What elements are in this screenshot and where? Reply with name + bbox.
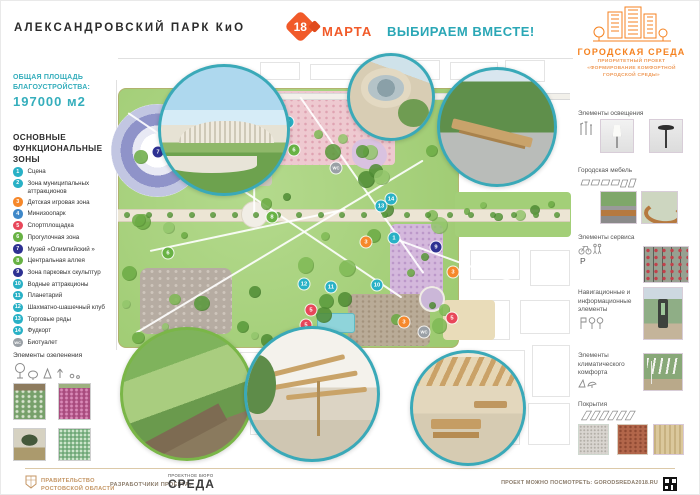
zone-label: Детская игровая зона	[28, 197, 90, 206]
zone-label: Торговые ряды	[28, 314, 71, 323]
tree	[511, 212, 517, 218]
map-marker-3: 3	[399, 317, 410, 328]
tree	[134, 150, 148, 164]
tree	[169, 294, 180, 305]
map-marker-10: 10	[372, 280, 383, 291]
zone-label: Спортплощадка	[28, 221, 74, 230]
date-number: 18	[294, 19, 307, 33]
map-marker-13: 13	[376, 201, 387, 212]
lighting-photo-black-lamp	[649, 119, 683, 153]
zone-number-badge: 4	[13, 209, 23, 219]
map-marker-11: 11	[326, 282, 337, 293]
furniture-photo-bench-1	[600, 191, 637, 224]
slogan: ВЫБИРАЕМ ВМЕСТЕ!	[387, 24, 535, 39]
zone-number-badge: 3	[13, 197, 23, 207]
map-marker-12: 12	[299, 279, 310, 290]
zone-number-badge: 14	[13, 326, 23, 336]
date-word: МАРТА	[322, 24, 372, 39]
program-subtitle: ПРИОРИТЕТНЫЙ ПРОЕКТ «ФОРМИРОВАНИЕ КОМФОР…	[568, 59, 695, 80]
photo-inset-planetarium-render	[347, 53, 435, 141]
zone-list-item: 11Планетарий	[13, 291, 116, 301]
tree	[425, 212, 431, 218]
zone-number-badge: WC	[13, 338, 23, 348]
tree	[122, 300, 131, 309]
photo-inset-foodcourt-pavilion	[410, 350, 526, 466]
poster-title: АЛЕКСАНДРОВСКИЙ ПАРК КиО	[14, 22, 245, 34]
legend-climate-title: Элементы климатического комфорта	[578, 352, 638, 378]
tree	[167, 212, 173, 218]
lamp-post-icons	[578, 120, 594, 136]
zone-list-item: 9Зона парковых скульптур	[13, 268, 116, 278]
zone-label: Музей «Олимпийский »	[28, 244, 95, 253]
zone-list-item: 13Торговые ряды	[13, 314, 116, 324]
tree	[404, 212, 410, 218]
zone-number-badge: 9	[13, 268, 23, 278]
tree	[146, 212, 152, 218]
zones-heading: ОСНОВНЫЕ ФУНКЦИОНАЛЬНЫЕ ЗОНЫ	[13, 133, 125, 165]
greenery-label: Элементы озеленения	[13, 352, 82, 359]
total-area-value: 197000 м2	[13, 94, 86, 109]
zone-label: Центральная аллея	[28, 256, 85, 265]
zone-label: Зона парковых скульптур	[28, 268, 101, 277]
legend-furniture-title: Городская мебель	[578, 167, 632, 176]
photo-inset-wooden-canopy	[244, 326, 380, 462]
city-sketch-block	[520, 300, 570, 334]
tree	[189, 212, 195, 218]
tree	[356, 145, 369, 158]
footer-divider	[25, 468, 675, 469]
tree	[490, 212, 496, 218]
zone-number-badge: 10	[13, 279, 23, 289]
qr-code	[663, 477, 677, 491]
zone-list-item: 1Сцена	[13, 167, 116, 177]
zone-label: Зона муниципальных аттракционов	[28, 179, 117, 196]
map-marker-8: 8	[267, 212, 278, 223]
map-marker-5: 5	[447, 313, 458, 324]
tree	[249, 286, 261, 298]
city-sketch-block	[528, 403, 570, 445]
bike-and-people-icons	[578, 243, 602, 255]
service-photo-bike-racks	[643, 246, 689, 283]
coverings-swatch-gravel	[578, 424, 609, 455]
zone-list-item: 5Спортплощадка	[13, 221, 116, 231]
city-sketch-block	[530, 250, 570, 286]
greenery-photo-tree	[13, 428, 46, 461]
city-sketch-block	[532, 345, 570, 397]
zone-label: Шахматно-шашечный клуб	[28, 303, 105, 312]
map-marker-WC: WC	[419, 327, 430, 338]
tree	[468, 212, 474, 218]
tree	[132, 214, 145, 227]
tree	[339, 260, 356, 277]
tree	[447, 212, 453, 218]
zone-list-item: 6Прогулочная зона	[13, 232, 116, 242]
zone-label: Прогулочная зона	[28, 232, 80, 241]
photo-inset-museum-render	[158, 64, 290, 196]
bureau-logo: ПРОЕКТНОЕ БЮРО СРЕДА	[168, 473, 215, 490]
poster-root: 724668131413931012113555WCWC АЛЕКСАНДРОВ…	[0, 0, 700, 495]
zone-list-item: 12Шахматно-шашечный клуб	[13, 303, 116, 313]
signage-icons	[578, 316, 604, 330]
zones-legend: 1Сцена2Зона муниципальных аттракционов3Д…	[13, 167, 116, 349]
photo-inset-street-aerial	[437, 67, 557, 187]
photo-inset-alley-trees	[120, 327, 254, 461]
tree	[554, 212, 560, 218]
map-marker-5: 5	[306, 305, 317, 316]
tree	[533, 212, 539, 218]
zone-label: Минизоопарк	[28, 209, 66, 218]
tree	[374, 170, 389, 185]
map-marker-6: 6	[163, 248, 174, 259]
tree	[232, 212, 238, 218]
bureau-name: СРЕДА	[168, 478, 215, 490]
tree	[339, 212, 345, 218]
coverings-swatch-clay	[617, 424, 648, 455]
map-marker-14: 14	[386, 194, 397, 205]
zone-list-item: 8Центральная аллея	[13, 256, 116, 266]
project-link-label: ПРОЕКТ МОЖНО ПОСМОТРЕТЬ: GORODSREDA2018.…	[430, 480, 658, 486]
city-buildings-icon	[592, 6, 672, 42]
tree	[494, 213, 502, 221]
legend-service-title: Элементы сервиса	[578, 234, 634, 243]
lighting-photo-white-lamp	[600, 119, 634, 153]
paving-icons	[578, 409, 646, 423]
zone-number-badge: 13	[13, 314, 23, 324]
tree-icons	[13, 361, 91, 381]
zone-number-badge: 12	[13, 303, 23, 313]
zone-number-badge: 7	[13, 244, 23, 254]
legend-navigation-title: Навигационные и информационные элементы	[578, 289, 640, 315]
climate-photo-pergola	[643, 353, 683, 391]
sketch-street-line	[118, 58, 573, 59]
map-marker-WC: WC	[331, 163, 342, 174]
sketch-street-line	[116, 80, 117, 350]
zone-label: Фудкорт	[28, 326, 52, 335]
tree	[298, 257, 315, 274]
map-marker-1: 1	[389, 233, 400, 244]
legend-lighting-title: Элементы освещения	[578, 110, 643, 119]
government-crest-icon	[25, 475, 37, 489]
coverings-swatch-decking	[653, 424, 684, 455]
tree	[251, 332, 259, 340]
zone-number-badge: 6	[13, 232, 23, 242]
tree	[296, 212, 302, 218]
zone-list-item: 3Детская игровая зона	[13, 197, 116, 207]
map-marker-3: 3	[448, 267, 459, 278]
map-marker-3: 3	[361, 237, 372, 248]
furniture-photo-bench-2	[641, 191, 678, 224]
tree	[382, 212, 388, 218]
zone-number-badge: 2	[13, 179, 23, 189]
tree	[124, 212, 130, 218]
zone-label: Водные аттракционы	[28, 279, 89, 288]
tree	[261, 198, 272, 209]
tree	[210, 212, 216, 218]
map-marker-6: 6	[289, 145, 300, 156]
tree	[548, 201, 555, 208]
zone-list-item: 14Фудкорт	[13, 326, 116, 336]
tree	[316, 307, 332, 323]
map-marker-9: 9	[431, 242, 442, 253]
program-name: ГОРОДСКАЯ СРЕДА	[568, 47, 695, 57]
zone-number-badge: 1	[13, 167, 23, 177]
zone-list-item: 2Зона муниципальных аттракционов	[13, 179, 116, 196]
zone-number-badge: 5	[13, 221, 23, 231]
city-sketch-block	[260, 62, 300, 80]
tree	[480, 202, 487, 209]
shade-structure-icons	[577, 377, 597, 389]
greenery-photo-groundcover	[58, 428, 91, 461]
tree	[361, 212, 367, 218]
parking-letter: Р	[580, 256, 586, 266]
zone-list-item: 4Минизоопарк	[13, 209, 116, 219]
zone-label: Биотуалет	[28, 338, 58, 347]
zone-number-badge: 11	[13, 291, 23, 301]
navigation-photo-info-kiosk	[643, 287, 683, 340]
greenery-photo-pink-shrub	[58, 383, 91, 420]
zone-list-item: WCБиотуалет	[13, 338, 116, 348]
zone-list-item: 7Музей «Олимпийский »	[13, 244, 116, 254]
sculpture-garden-zone	[348, 294, 430, 346]
total-area-label: ОБЩАЯ ПЛОЩАДЬ БЛАГОУСТРОЙСТВА:	[13, 73, 117, 93]
tree	[318, 212, 324, 218]
bench-icons	[578, 176, 638, 189]
greenery-photo-flowering-shrub	[13, 383, 46, 420]
zone-label: Сцена	[28, 167, 46, 176]
zone-list-item: 10Водные аттракционы	[13, 279, 116, 289]
tree	[253, 212, 259, 218]
program-logo: ГОРОДСКАЯ СРЕДА ПРИОРИТЕТНЫЙ ПРОЕКТ «ФОР…	[568, 6, 695, 80]
zone-label: Планетарий	[28, 291, 63, 300]
zone-number-badge: 8	[13, 256, 23, 266]
tree	[432, 318, 447, 333]
tree	[421, 253, 429, 261]
